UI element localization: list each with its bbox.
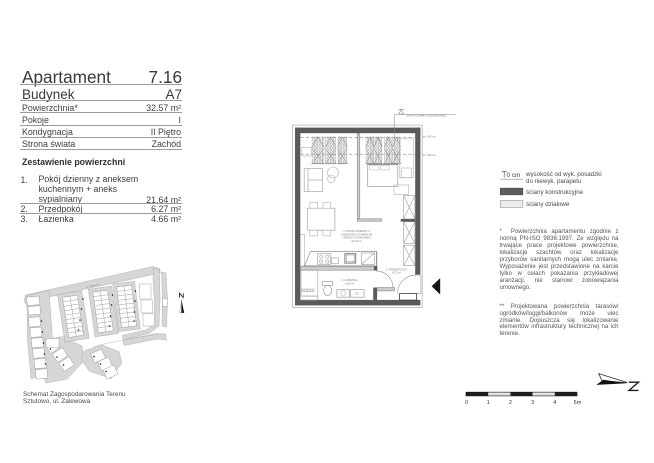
svg-text:3. ŁAZIENKA: 3. ŁAZIENKA (342, 278, 358, 282)
svg-text:I ANEKS SYPIALNIANY: I ANEKS SYPIALNIANY (342, 236, 371, 240)
svg-text:21,64 m²: 21,64 m² (351, 239, 362, 243)
svg-text:ANEKSEM KUCHENNYM: ANEKSEM KUCHENNYM (341, 232, 373, 236)
svg-text:2: 2 (509, 400, 512, 406)
svg-text:2. PRZEDPOKÓJ: 2. PRZEDPOKÓJ (386, 266, 408, 271)
svg-text:5m: 5m (574, 400, 582, 406)
svg-text:1. POKÓJ DZIENNY Z: 1. POKÓJ DZIENNY Z (343, 228, 370, 233)
svg-text:4: 4 (553, 400, 556, 406)
svg-text:h= 100 cm: h= 100 cm (423, 153, 437, 157)
svg-text:h= 140 cm: h= 140 cm (423, 134, 437, 138)
svg-text:GÓRA ŚCIANKI KOLANKOWEJ: GÓRA ŚCIANKI KOLANKOWEJ (406, 112, 447, 117)
svg-text:3: 3 (531, 400, 534, 406)
svg-text:1: 1 (487, 400, 490, 406)
svg-text:6,27 m²: 6,27 m² (392, 271, 401, 275)
svg-text:4,66 m²: 4,66 m² (345, 281, 354, 285)
svg-text:0: 0 (465, 400, 468, 406)
